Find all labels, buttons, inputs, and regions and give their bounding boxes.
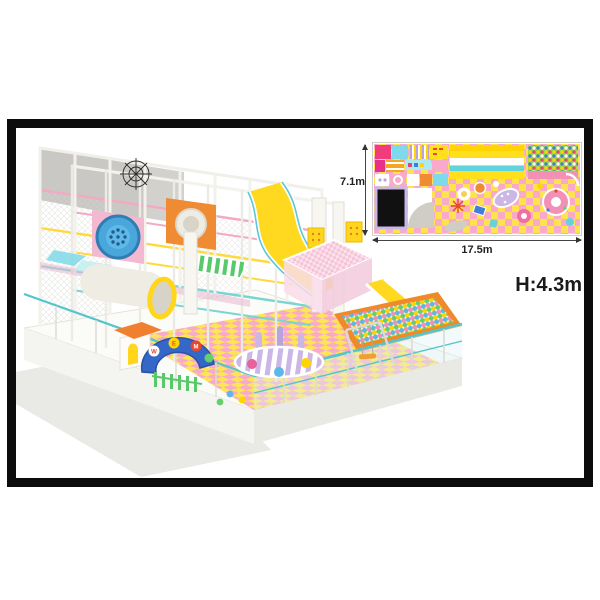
dimension-arrow xyxy=(362,144,368,150)
photo-frame: W E M xyxy=(7,119,593,487)
arch-letter: E xyxy=(172,342,176,348)
arch-letter: M xyxy=(194,345,199,351)
dimension-arrow xyxy=(372,237,378,243)
width-dimension-label: 17.5m xyxy=(372,244,582,256)
floor-plan-block: 7.1m xyxy=(342,142,584,260)
dimension-arrow xyxy=(362,230,368,236)
arch-letter: W xyxy=(151,350,157,356)
plan-trampoline-black xyxy=(376,188,406,228)
plan-slide-zone xyxy=(450,145,524,179)
dimension-arrow xyxy=(576,237,582,243)
porthole-panel-blue xyxy=(92,210,144,264)
depth-dimension-line xyxy=(365,145,366,235)
width-dimension-line xyxy=(373,240,581,241)
photo-inner: W E M xyxy=(16,128,584,478)
plan-slide-runout xyxy=(408,188,434,228)
depth-dimension-label: 7.1m xyxy=(340,176,364,188)
floor-plan-top-view xyxy=(372,142,582,236)
product-image-canvas: { "annotations": { "depth_label": "7.1m"… xyxy=(0,0,600,600)
plan-ball-pit-zone xyxy=(528,145,578,171)
height-annotation: H:4.3m xyxy=(506,274,582,297)
